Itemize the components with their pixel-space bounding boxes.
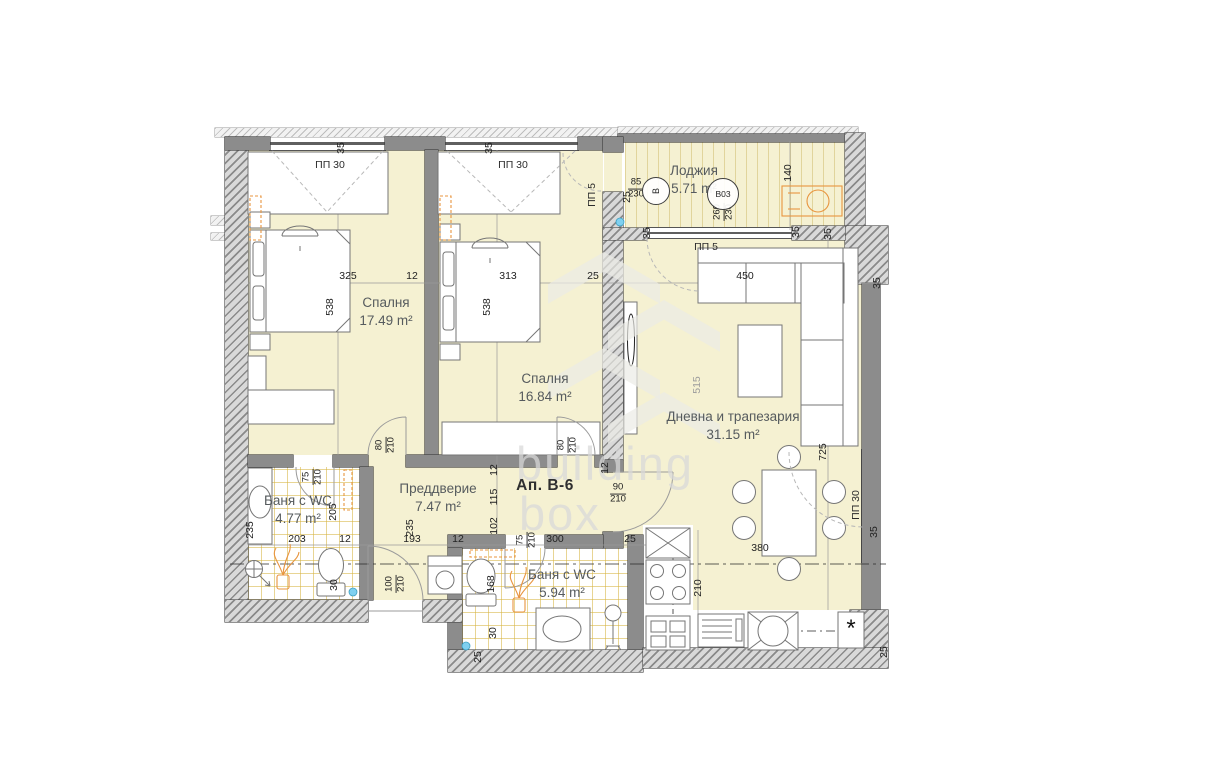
door-size-label: 75210 (516, 532, 539, 548)
floor-plan: building box Ап. В-6 * 32512313254505385… (0, 0, 1216, 780)
room-name: Преддверие (399, 480, 476, 498)
reference-circle: В (642, 177, 670, 205)
room-name: Баня с WC (528, 566, 596, 584)
dim-label: 300 (546, 533, 564, 545)
dim-label: 35 (822, 228, 834, 240)
dim-label: 35 (483, 142, 495, 154)
dim-label: 515 (691, 376, 703, 394)
dim-label: 538 (324, 298, 336, 316)
door-size-label: 100210 (385, 575, 408, 593)
annotations: Ап. В-6 * 325123132545053853835352514035… (0, 0, 1216, 780)
dim-label: 115 (488, 489, 500, 506)
room-name: Дневна и трапезария (666, 408, 799, 426)
dim-label: 25 (624, 533, 636, 545)
opening-type-label: ПП 5 (694, 241, 718, 253)
door-size-label: 80210 (557, 437, 580, 453)
opening-type-label: ПП 30 (498, 159, 528, 171)
dim-label: 235 (244, 521, 256, 539)
room-area: 4.77 m² (264, 510, 332, 528)
dim-label: 25 (472, 651, 484, 663)
room-label: Спалня17.49 m² (359, 294, 412, 330)
dim-label: 35 (790, 226, 802, 238)
dim-label: 30 (328, 579, 340, 591)
dim-label: 725 (817, 443, 829, 461)
dim-label: 12 (339, 533, 351, 545)
opening-type-label: ПП 30 (850, 490, 862, 520)
room-area: 7.47 m² (399, 498, 476, 516)
opening-type-label: ПП 5 (586, 183, 598, 207)
dim-label: 12 (488, 464, 500, 476)
reference-circle-text: В (651, 188, 661, 194)
dim-label: 450 (736, 270, 754, 282)
room-area: 5.94 m² (528, 584, 596, 602)
room-name: Лоджия (670, 162, 718, 180)
door-size-label: 80210 (375, 437, 398, 453)
dim-label: 380 (751, 542, 769, 554)
reference-circle: В03 (707, 178, 739, 210)
dim-label: 12 (452, 533, 464, 545)
dim-label: 325 (339, 270, 357, 282)
dim-label: 313 (499, 270, 517, 282)
dim-label: 168 (485, 575, 497, 593)
dim-label: 25 (587, 270, 599, 282)
room-name: Спалня (518, 370, 571, 388)
room-area: 17.49 m² (359, 312, 412, 330)
asterisk-symbol: * (846, 615, 855, 643)
room-name: Баня с WC (264, 492, 332, 510)
dim-label: 140 (782, 164, 794, 182)
apartment-number-label: Ап. В-6 (516, 477, 574, 495)
door-size-label: 75210 (302, 469, 325, 485)
dim-label: 12 (406, 270, 418, 282)
door-size-label: 90210 (610, 483, 626, 506)
dim-label: 102 (488, 517, 500, 535)
room-area: 31.15 m² (666, 426, 799, 444)
dim-label: 210 (692, 579, 704, 597)
dim-label: 35 (641, 227, 653, 239)
dim-label: 203 (288, 533, 306, 545)
dim-label: 12 (599, 462, 611, 474)
dim-label: 235 (404, 519, 416, 537)
opening-type-label: ПП 30 (315, 159, 345, 171)
room-area: 16.84 m² (518, 388, 571, 406)
dim-label: 35 (335, 142, 347, 154)
dim-label: 35 (871, 277, 883, 289)
room-label: Баня с WC5.94 m² (528, 566, 596, 602)
dim-label: 35 (868, 526, 880, 538)
dim-label: 30 (487, 627, 499, 639)
room-name: Спалня (359, 294, 412, 312)
dim-label: 25 (878, 646, 890, 658)
room-label: Баня с WC4.77 m² (264, 492, 332, 528)
room-label: Спалня16.84 m² (518, 370, 571, 406)
room-label: Преддверие7.47 m² (399, 480, 476, 516)
reference-circle-text: В03 (715, 189, 730, 199)
room-label: Дневна и трапезария31.15 m² (666, 408, 799, 444)
dim-label: 538 (481, 298, 493, 316)
